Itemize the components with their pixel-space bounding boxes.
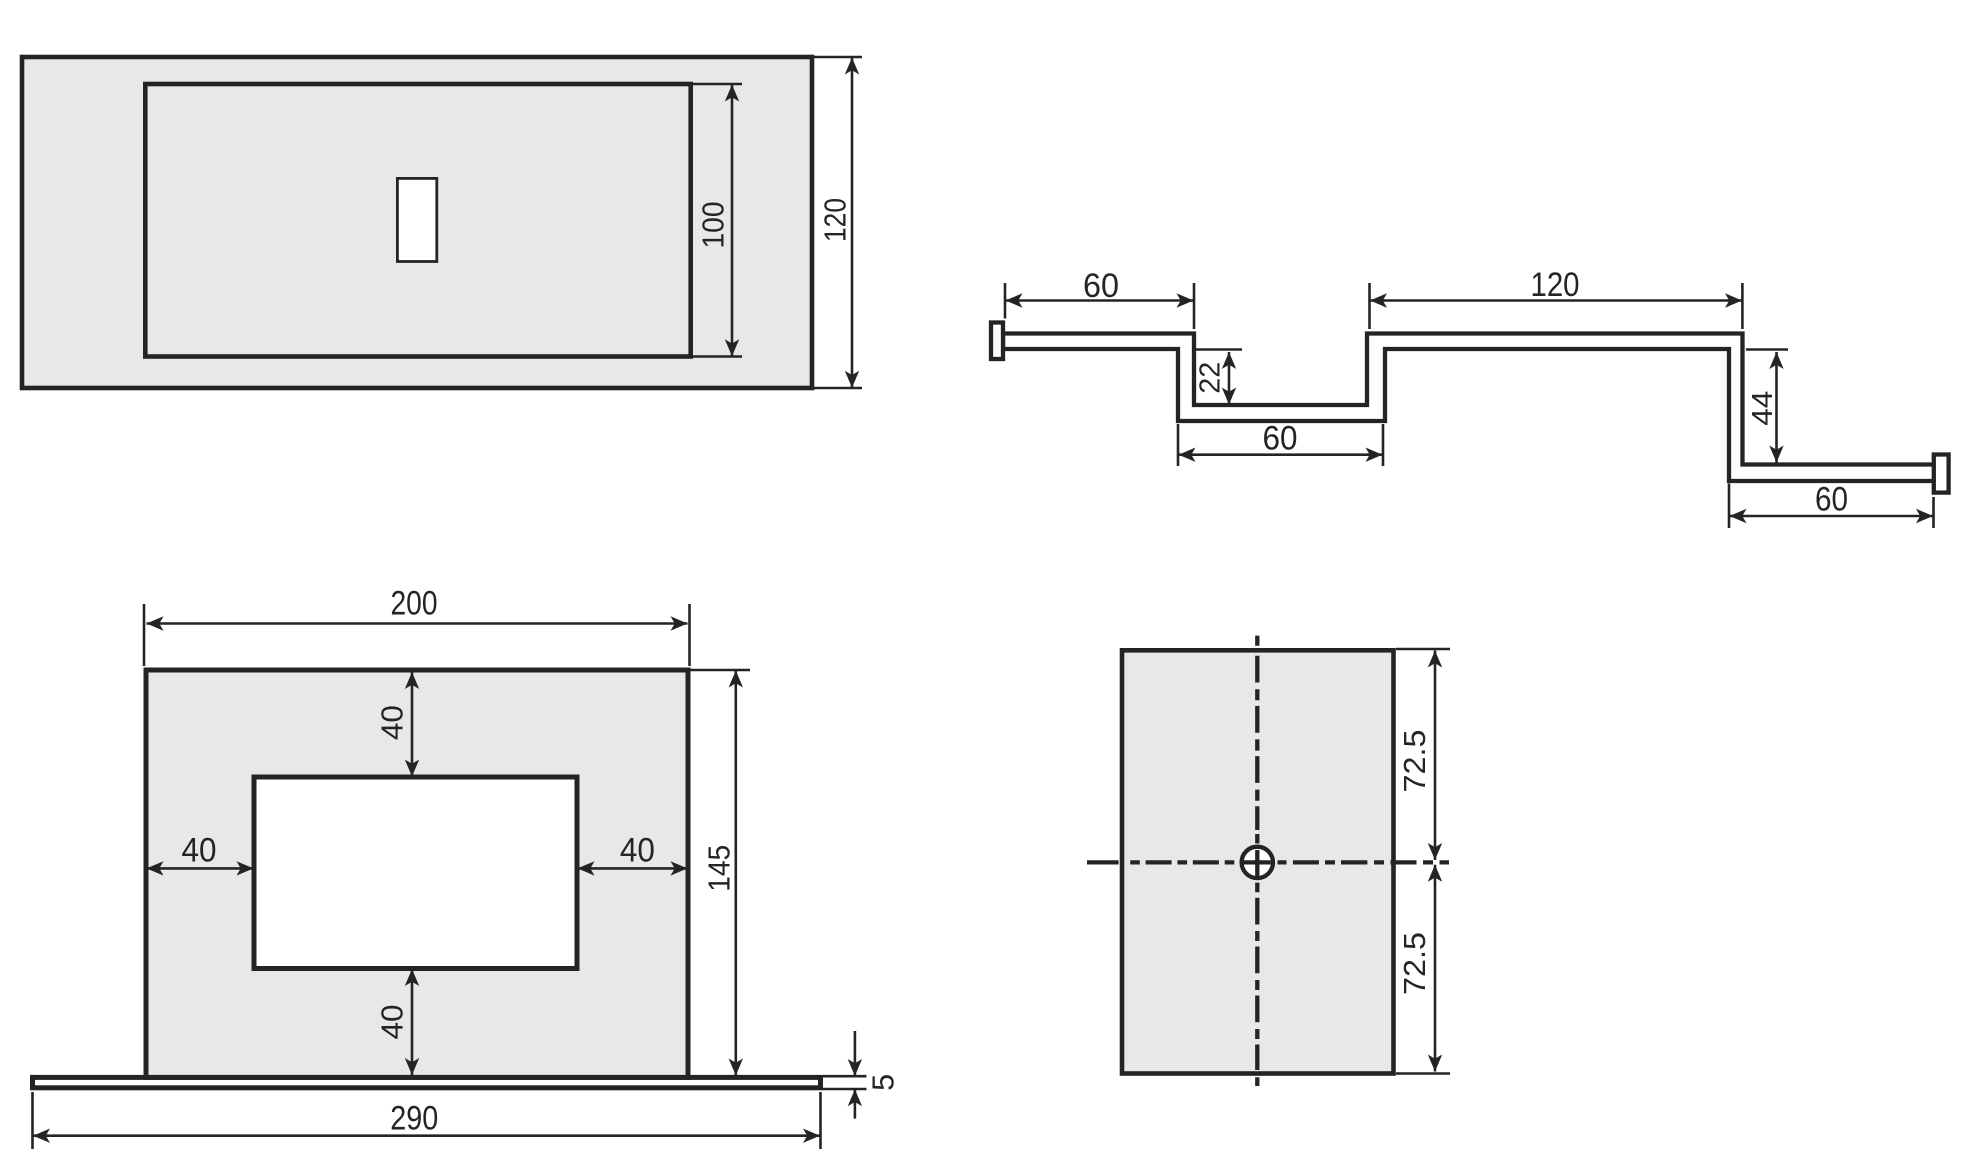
svg-text:60: 60 (1083, 267, 1119, 305)
svg-text:44: 44 (1747, 391, 1779, 426)
svg-text:100: 100 (696, 202, 731, 249)
svg-text:200: 200 (391, 585, 438, 623)
svg-text:40: 40 (375, 1005, 410, 1040)
svg-text:5: 5 (865, 1074, 900, 1091)
svg-text:72.5: 72.5 (1397, 730, 1432, 793)
svg-text:60: 60 (1815, 481, 1848, 519)
svg-text:60: 60 (1263, 420, 1298, 458)
svg-text:40: 40 (620, 832, 655, 870)
svg-text:290: 290 (390, 1100, 438, 1138)
svg-text:22: 22 (1195, 362, 1227, 394)
svg-text:120: 120 (818, 198, 853, 242)
svg-text:40: 40 (375, 705, 410, 740)
svg-text:40: 40 (182, 832, 217, 870)
svg-text:72.5: 72.5 (1397, 932, 1432, 995)
svg-text:145: 145 (701, 845, 736, 892)
svg-text:120: 120 (1531, 266, 1580, 304)
